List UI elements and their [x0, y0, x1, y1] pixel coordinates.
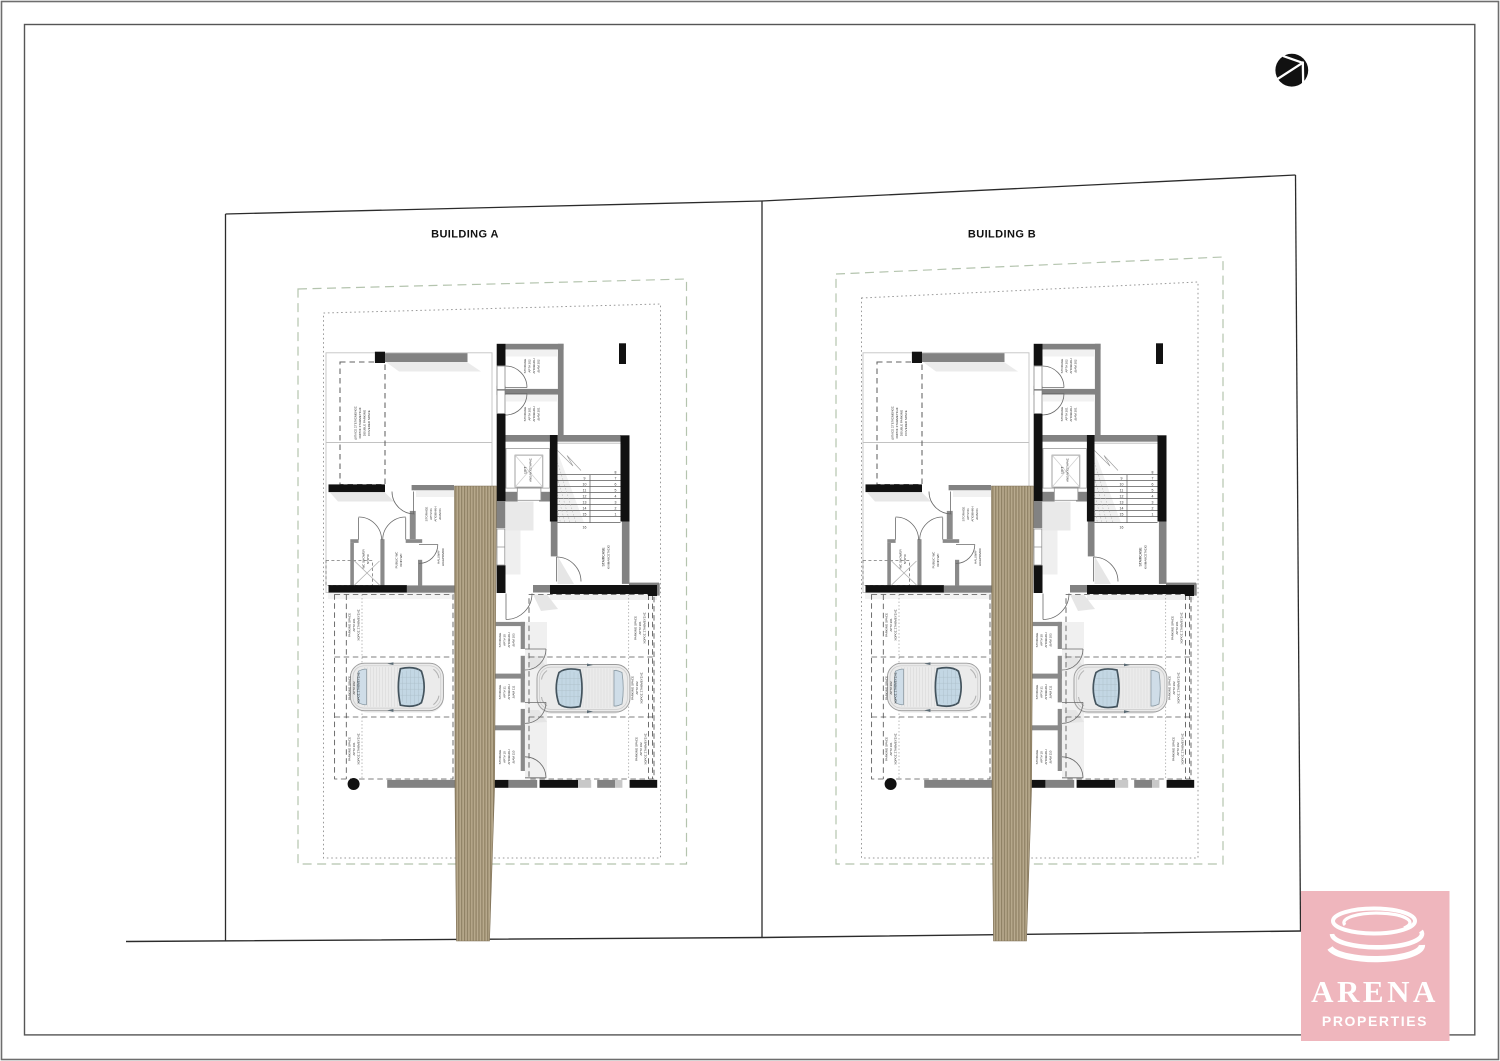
svg-text:PARKING SPACE: PARKING SPACE — [348, 737, 352, 761]
svg-text:APT# 301: APT# 301 — [638, 621, 642, 635]
svg-text:PARKING SPACE: PARKING SPACE — [634, 616, 638, 640]
svg-text:ΔΙΑΔΡΟΜΟΣ: ΔΙΑΔΡΟΜΟΣ — [441, 548, 445, 566]
svg-text:ΑΠΟΘΗΚΗ: ΑΠΟΘΗΚΗ — [532, 406, 536, 421]
svg-text:14: 14 — [583, 506, 587, 510]
svg-text:ΔΙΠΛΟΣ ΣΤΕΓΑΣΜΕΝΟΣ: ΔΙΠΛΟΣ ΣΤΕΓΑΣΜΕΝΟΣ — [354, 406, 358, 440]
svg-text:PARKING SPACE: PARKING SPACE — [635, 737, 639, 761]
svg-text:COVERED SPACE: COVERED SPACE — [367, 410, 371, 436]
svg-text:15: 15 — [583, 512, 587, 516]
svg-text:4: 4 — [615, 494, 617, 498]
svg-text:10: 10 — [583, 482, 587, 486]
svg-text:ΔΙΑΜ 103: ΔΙΑΜ 103 — [512, 633, 516, 647]
svg-text:ΑΠΟΘΗΚΗ: ΑΠΟΘΗΚΗ — [532, 358, 536, 373]
svg-text:ΧΩΡΟΣ ΣΤΑΘΜΕΥΣΗΣ: ΧΩΡΟΣ ΣΤΑΘΜΕΥΣΗΣ — [357, 733, 361, 765]
svg-text:ΧΩΡΟΣ ΣΤΑΘΜΕΥΣΗΣ: ΧΩΡΟΣ ΣΤΑΘΜΕΥΣΗΣ — [358, 407, 362, 439]
svg-text:PARKING SPACE: PARKING SPACE — [348, 676, 352, 700]
svg-text:ΧΩΡΟΣ ΣΤΑΘΜΕΥΣΗΣ: ΧΩΡΟΣ ΣΤΑΘΜΕΥΣΗΣ — [643, 612, 647, 644]
svg-text:8: 8 — [615, 470, 617, 474]
svg-text:APT# 202: APT# 202 — [528, 359, 532, 373]
svg-text:APT# 30: APT# 30 — [503, 634, 507, 646]
svg-text:WC SHOWER: WC SHOWER — [362, 549, 366, 569]
svg-text:ΧΩΡΟΣ ΣΤΑΘΜΕΥΣΗΣ: ΧΩΡΟΣ ΣΤΑΘΜΕΥΣΗΣ — [357, 672, 361, 704]
svg-text:ΧΩΡΟΣ ΣΤΑΘΜΕΥΣΗΣ: ΧΩΡΟΣ ΣΤΑΘΜΕΥΣΗΣ — [644, 733, 648, 765]
svg-text:DOUBLE PARKING: DOUBLE PARKING — [363, 409, 367, 436]
svg-text:2: 2 — [615, 506, 617, 510]
svg-text:STORAGE: STORAGE — [523, 407, 527, 422]
svg-text:APT# 201: APT# 201 — [528, 407, 532, 421]
svg-text:BUILDING B: BUILDING B — [968, 229, 1036, 241]
svg-text:13: 13 — [583, 500, 587, 504]
svg-text:STORAGE: STORAGE — [498, 750, 502, 765]
svg-text:ΑΠΟΘΗΚΗ: ΑΠΟΘΗΚΗ — [507, 632, 511, 647]
svg-text:ARENA: ARENA — [1311, 974, 1439, 1009]
svg-text:APT# 202: APT# 202 — [352, 681, 356, 695]
svg-text:ΑΝΕΛΚΥΣΤΗΡΑΣ: ΑΝΕΛΚΥΣΤΗΡΑΣ — [529, 458, 533, 482]
svg-text:APT# 31: APT# 31 — [503, 686, 507, 698]
svg-text:1: 1 — [615, 512, 617, 516]
svg-text:APT# 302: APT# 302 — [635, 681, 639, 695]
svg-text:12: 12 — [583, 494, 587, 498]
svg-text:5: 5 — [615, 488, 617, 492]
svg-text:STORAGE: STORAGE — [523, 359, 527, 374]
svg-text:PROPERTIES: PROPERTIES — [1322, 1013, 1428, 1029]
svg-text:ΔΙΑΜ 110: ΔΙΑΜ 110 — [512, 750, 516, 763]
svg-text:ΧΩΡΟΣ ΣΤΑΘΜΕΥΣΗΣ: ΧΩΡΟΣ ΣΤΑΘΜΕΥΣΗΣ — [357, 609, 361, 641]
svg-text:STAIRCASE: STAIRCASE — [602, 547, 606, 567]
svg-text:ΔΙΑΜ 01: ΔΙΑΜ 01 — [438, 508, 442, 520]
svg-text:16: 16 — [583, 526, 587, 530]
svg-text:ΔΙΑΜ 201: ΔΙΑΜ 201 — [537, 407, 541, 421]
svg-text:LIFT: LIFT — [524, 467, 528, 474]
svg-text:ΑΠΟΘΗΚΗ: ΑΠΟΘΗΚΗ — [507, 684, 511, 699]
svg-text:9: 9 — [584, 476, 586, 480]
svg-text:STORAGE: STORAGE — [498, 633, 502, 648]
svg-text:ΚΟΙΝ WC: ΚΟΙΝ WC — [399, 553, 403, 567]
svg-text:PUBLIC WC: PUBLIC WC — [395, 551, 399, 569]
svg-text:ΔΙΑΜ 202: ΔΙΑΜ 202 — [537, 359, 541, 373]
svg-text:3: 3 — [615, 500, 617, 504]
svg-text:ΧΩΡΟΣ ΣΤΑΘΜΕΥΣΗΣ: ΧΩΡΟΣ ΣΤΑΘΜΕΥΣΗΣ — [640, 672, 644, 704]
svg-text:HALLWAY: HALLWAY — [437, 550, 441, 564]
svg-text:BUILDING A: BUILDING A — [431, 229, 499, 241]
svg-text:7: 7 — [615, 476, 617, 480]
svg-text:APT# 102: APT# 102 — [639, 742, 643, 756]
svg-text:ΑΠΟΘΗΚΗ: ΑΠΟΘΗΚΗ — [434, 506, 438, 521]
svg-text:APT# 01: APT# 01 — [429, 508, 433, 520]
svg-text:APT# 10: APT# 10 — [503, 751, 507, 763]
svg-text:STORAGE: STORAGE — [425, 507, 429, 522]
svg-text:ΝΤΟΥΣ: ΝΤΟΥΣ — [366, 554, 370, 564]
svg-text:APT# 201: APT# 201 — [352, 618, 356, 632]
svg-text:ΑΠΟΘΗΚΗ: ΑΠΟΘΗΚΗ — [507, 749, 511, 764]
svg-text:ΔΙΑΜ 111: ΔΙΑΜ 111 — [512, 685, 516, 698]
svg-text:PARKING SPACE: PARKING SPACE — [348, 613, 352, 637]
svg-text:STORAGE: STORAGE — [498, 685, 502, 700]
svg-text:11: 11 — [583, 488, 587, 492]
svg-text:PARKING SPACE: PARKING SPACE — [631, 676, 635, 700]
svg-text:ΚΛΙΜΑΚΟΣΤΑΣΙΟ: ΚΛΙΜΑΚΟΣΤΑΣΙΟ — [607, 544, 611, 569]
svg-text:APT# 101: APT# 101 — [352, 742, 356, 756]
svg-text:6: 6 — [615, 482, 617, 486]
